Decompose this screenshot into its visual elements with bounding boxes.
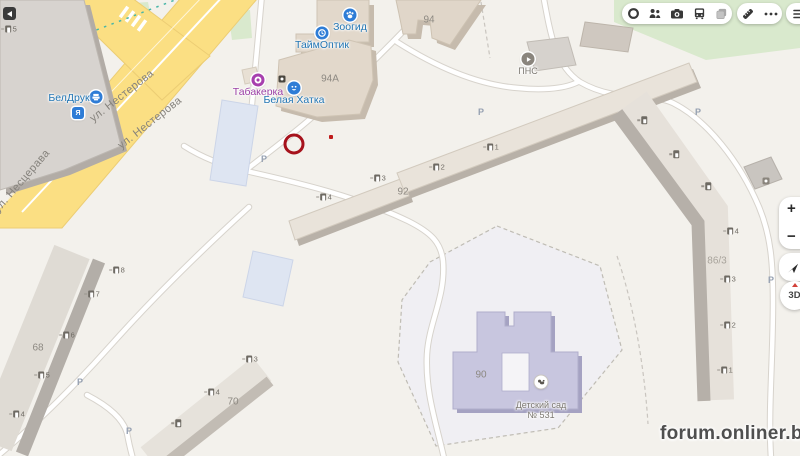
utility-icon[interactable] [522,53,535,66]
entrance-marker: 4 [723,227,739,236]
traffic-ring-icon[interactable] [623,3,644,24]
entrance-marker: 5 [1,25,17,34]
zoom-out-button[interactable]: − [779,223,800,250]
poi-label-beldruk[interactable]: БелДрук [48,92,89,104]
entrance-marker: 2 [720,321,736,330]
building-number-94: 94 [423,15,434,26]
building-number-86-3: 86/3 [707,256,726,267]
panoramas-camera-icon[interactable] [667,3,688,24]
entrance-marker: 4 [9,410,25,419]
entrance-marker [701,182,713,190]
back-arrow-icon[interactable] [3,7,16,20]
poi-label-zoogid[interactable]: Зоогид [333,21,367,33]
entrance-marker: 4 [204,388,220,397]
locate-me-button[interactable] [779,253,800,281]
building-number-92: 92 [397,187,408,198]
smiley-icon[interactable] [288,82,301,95]
entrance-marker: 1 [717,366,733,375]
parking-areas [210,100,293,306]
building-number-94a: 94А [321,74,339,85]
entrance-marker [171,419,183,427]
entrance-marker: 3 [370,174,386,183]
compass-3d-label: 3D [788,290,800,301]
entrance-marker: 2 [429,163,445,172]
parking-label: Р [261,154,267,164]
utility-small-icon [763,178,770,185]
map-layers-toolbar [622,3,732,24]
poi-label-detsad[interactable]: Детский сад № 531 [513,400,569,421]
entrance-marker: 1 [483,143,499,152]
entrance-marker: 4 [316,193,332,202]
building-number-90: 90 [475,370,486,381]
entrance-marker [669,150,681,158]
parking-label: Р [126,426,132,436]
annotation-red-dot [329,135,333,139]
donut-icon[interactable] [252,74,265,87]
entrance-marker: 8 [109,266,125,275]
map-viewport[interactable]: ул. Нестерова ул. Нестерова ул. Несцерав… [0,0,800,456]
buildings [0,0,782,456]
roads-minor [0,0,773,456]
entrance-marker: 3 [720,275,736,284]
printer-icon[interactable] [90,91,103,104]
layers-icon[interactable] [711,3,732,24]
entrance-marker [637,116,649,124]
map-tools-toolbar [737,3,782,24]
building-number-70: 70 [227,397,238,408]
kindergarten-icon[interactable] [535,376,548,389]
mirrors-people-icon[interactable] [645,3,666,24]
entrance-marker: 3 [242,355,258,364]
bank-icon[interactable]: Я [72,107,84,119]
location-arrow-icon [786,261,799,274]
annotation-red-circle [284,134,305,155]
parking-label: Р [695,107,701,117]
parking-label: Р [478,107,484,117]
menu-button[interactable] [786,3,800,24]
entrance-marker: 7 [84,290,100,299]
clock-icon[interactable] [316,27,329,40]
entrance-marker: 5 [34,371,50,380]
zoom-in-button[interactable]: + [779,197,800,223]
poi-label-belaya-hatka[interactable]: Белая Хатка [263,94,324,106]
building-number-68: 68 [32,343,43,354]
more-dots-icon[interactable] [760,3,781,24]
poi-label-taimoptik[interactable]: ТаймОптик [295,39,349,51]
entrance-marker: 6 [59,331,75,340]
zoom-control: + − [779,197,800,249]
shop-icon [279,76,286,83]
parking-label: Р [768,275,774,285]
map-canvas [0,0,800,456]
parking-label: Р [77,377,83,387]
transport-bus-icon[interactable] [689,3,710,24]
paw-icon[interactable] [344,9,357,22]
watermark: forum.onliner.by [660,423,800,445]
menu-burger-icon [789,3,800,24]
ruler-icon[interactable] [738,3,759,24]
poi-label-pns[interactable]: ПНС [518,66,537,76]
